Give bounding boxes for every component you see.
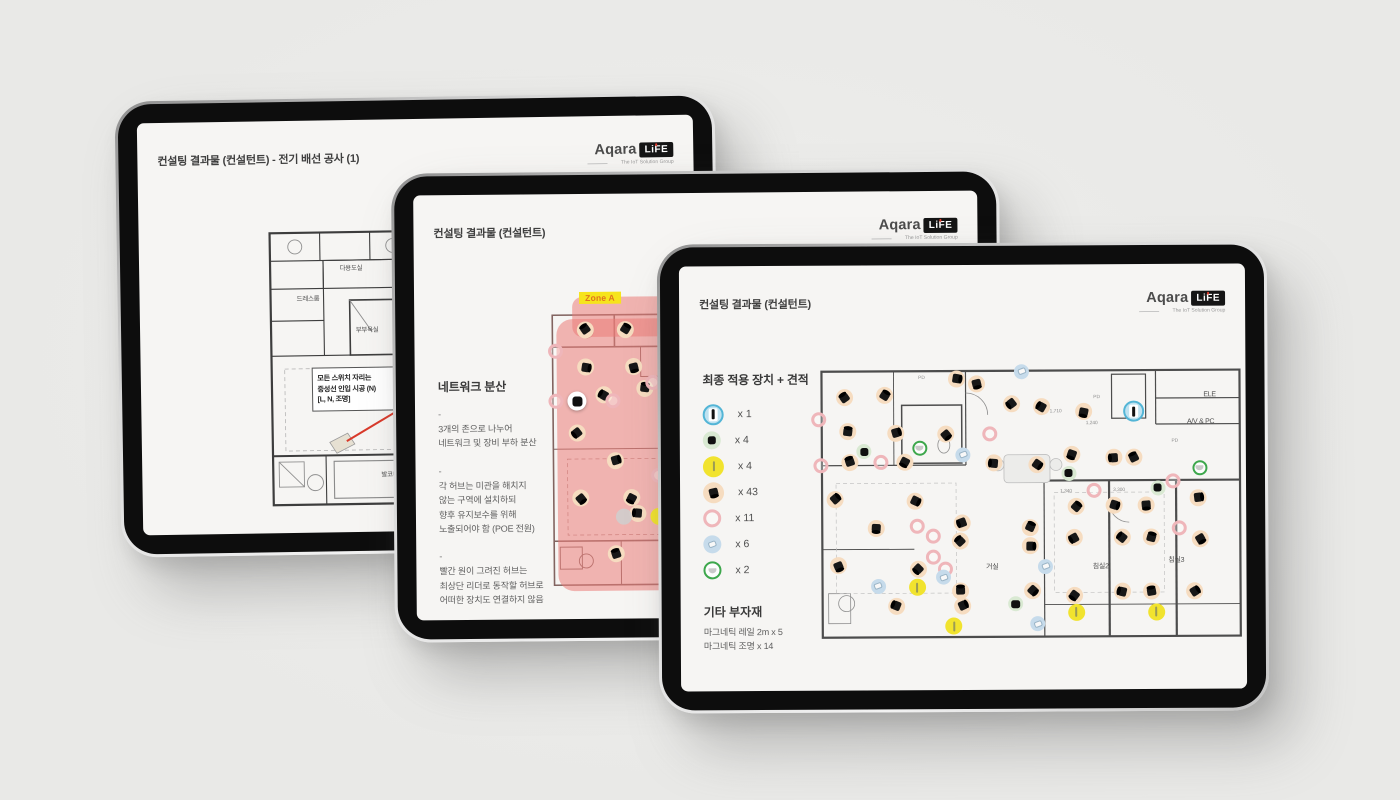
text-line: 어떠한 장치도 연결하지 않음 xyxy=(440,592,555,607)
spot-device-icon xyxy=(1143,583,1160,600)
bowl-device-icon xyxy=(703,561,721,579)
spot-device-icon xyxy=(1033,398,1050,415)
logo-brand: Aqara xyxy=(879,217,921,233)
ring-device-icon xyxy=(982,427,997,442)
hub-device-icon xyxy=(1061,465,1076,480)
aqara-logo: Aqara LiFE The IoT Solution Group xyxy=(587,141,673,166)
logo-tagline: The IoT Solution Group xyxy=(1172,308,1225,313)
bullet-group: -빨간 원이 그려진 허브는최상단 리더로 동작할 허브로어떠한 장치도 연결하… xyxy=(439,551,554,608)
legend-row: x 43 xyxy=(703,481,818,504)
legend-count: x 43 xyxy=(738,486,758,498)
legend-row: x 2 xyxy=(703,559,818,582)
ring-device-icon xyxy=(926,549,941,564)
gateway-device-icon xyxy=(1123,401,1144,422)
spot-device-icon xyxy=(1022,519,1039,536)
legend-row: x 4 xyxy=(703,455,818,478)
sensor-device-icon xyxy=(1014,364,1029,379)
slide-final-devices-quote: 컨설팅 결과물 (컨설턴트) Aqara LiFE The IoT Soluti… xyxy=(679,264,1247,692)
spot-device-icon xyxy=(888,425,905,442)
slide-header: 컨설팅 결과물 (컨설턴트) Aqara LiFE The IoT Soluti… xyxy=(679,264,1245,317)
tablet-front: 컨설팅 결과물 (컨설턴트) Aqara LiFE The IoT Soluti… xyxy=(657,241,1269,713)
room-label: ELE xyxy=(1203,392,1215,399)
ring-device-icon xyxy=(703,509,721,527)
spot-device-icon xyxy=(1143,528,1160,545)
spot-device-icon xyxy=(1189,489,1206,506)
plan-dimension-label: 1,710 xyxy=(1049,409,1061,414)
logo-tagline: The IoT Solution Group xyxy=(621,159,674,165)
legend-count: x 4 xyxy=(738,460,752,472)
spot-device-icon xyxy=(1186,583,1203,600)
logo-badge: LiFE xyxy=(924,217,958,232)
bullet-group: -3개의 존으로 나누어네트워크 및 장비 부하 분산 xyxy=(438,408,553,451)
ring-device-icon xyxy=(548,344,563,359)
spot-device-icon xyxy=(1114,529,1131,546)
spot-device-icon xyxy=(569,424,586,441)
light-device-icon xyxy=(909,579,926,596)
text-line: 최상단 리더로 동작할 허브로 xyxy=(440,578,555,593)
stage: 컨설팅 결과물 (컨설턴트) - 전기 배선 공사 (1) Aqara LiFE… xyxy=(0,0,1400,800)
ring-device-icon xyxy=(1165,473,1180,488)
text-line: 노출되어야 함 (POE 전원) xyxy=(439,521,554,536)
annotation-box: 모든 스위치 자리는중성선 인입 시공 (N)[L, N, 조명] xyxy=(312,367,397,412)
plan-dimension-label: PD xyxy=(918,376,925,381)
hub-device-icon xyxy=(703,431,721,449)
spot-device-icon xyxy=(1075,403,1092,420)
spot-device-icon xyxy=(1191,530,1208,547)
spot-device-icon xyxy=(1106,496,1123,513)
spot-device-icon xyxy=(1029,456,1046,473)
slide-title: 컨설팅 결과물 (컨설턴트) - 전기 배선 공사 (1) xyxy=(157,146,359,169)
ring-device-icon xyxy=(926,529,941,544)
room-label: 침실3 xyxy=(1168,555,1184,565)
light-device-icon xyxy=(703,456,724,477)
legend-count: x 4 xyxy=(735,434,749,446)
sensor-device-icon xyxy=(871,578,886,593)
text-line: 각 허브는 미관을 해치지 xyxy=(439,478,554,493)
text-line: 않는 구역에 설치하되 xyxy=(439,492,554,507)
slide-header: 컨설팅 결과물 (컨설턴트) Aqara LiFE The IoT Soluti… xyxy=(413,191,977,246)
bullet-dash: - xyxy=(438,408,553,419)
gateway-device-icon xyxy=(703,404,724,425)
spot-device-icon xyxy=(841,454,858,471)
plan-dimension-label: 1,340 xyxy=(1060,489,1072,494)
legend-count: x 1 xyxy=(738,408,752,420)
spot-device-icon xyxy=(868,520,885,537)
section-heading: 최종 적용 장치 + 견적 xyxy=(702,371,817,389)
bullet-dash: - xyxy=(439,551,554,562)
spot-device-icon xyxy=(1125,449,1142,466)
spot-device-icon xyxy=(1114,583,1131,600)
spot-device-icon xyxy=(1138,496,1155,513)
ring-device-icon xyxy=(548,394,563,409)
text-line: 빨간 원이 그려진 허브는 xyxy=(439,564,554,579)
ring-device-icon xyxy=(874,455,889,470)
spot-device-icon xyxy=(954,597,971,614)
legend-row: x 11 xyxy=(703,507,818,530)
bowl-device-icon xyxy=(912,441,927,456)
spot-device-icon xyxy=(572,489,589,506)
spot-device-icon xyxy=(1066,529,1083,546)
ring-device-icon xyxy=(1172,521,1187,536)
ring-device-icon xyxy=(1086,482,1101,497)
plan-dimension-label: 3,300 xyxy=(1113,488,1125,493)
logo-tagline: The IoT Solution Group xyxy=(905,235,958,241)
hub-device-icon xyxy=(1150,480,1165,495)
aqara-logo: Aqara LiFE The IoT Solution Group xyxy=(1139,290,1225,314)
text-line: [L, N, 조명] xyxy=(318,394,393,406)
bullet-list: -3개의 존으로 나누어네트워크 및 장비 부하 분산-각 허브는 미관을 해치… xyxy=(438,408,555,608)
spot-device-icon xyxy=(625,358,642,375)
spot-device-icon xyxy=(836,389,853,406)
section-heading: 네트워크 분산 xyxy=(438,377,553,395)
spot-device-icon xyxy=(948,370,965,387)
legend-count: x 6 xyxy=(735,538,749,550)
zone-a-tag: Zone A xyxy=(579,292,621,304)
legend-row: x 1 xyxy=(703,403,818,426)
spot-device-icon xyxy=(1024,582,1041,599)
room-label: A/V & PC xyxy=(1187,419,1214,426)
spot-device-icon xyxy=(1064,446,1081,463)
spot-device-icon xyxy=(826,491,843,508)
spot-device-icon xyxy=(617,321,634,338)
spot-device-icon xyxy=(968,375,985,392)
slide-title: 컨설팅 결과물 (컨설턴트) xyxy=(433,220,545,241)
ring-device-icon xyxy=(814,458,829,473)
hub-white-device-icon xyxy=(568,392,587,411)
spot-device-icon xyxy=(607,452,624,469)
spot-device-icon xyxy=(608,545,625,562)
legend-count: x 2 xyxy=(735,564,749,576)
spot-device-icon xyxy=(839,423,856,440)
spot-device-icon xyxy=(577,358,594,375)
extras-heading: 기타 부자재 xyxy=(704,603,819,621)
text-line: 마그네틱 레일 2m x 5 xyxy=(704,625,819,640)
spot-device-icon xyxy=(1022,537,1039,554)
logo-brand: Aqara xyxy=(594,142,636,159)
spot-device-icon xyxy=(876,387,893,404)
spot-device-icon xyxy=(938,426,955,443)
tablet-front-bezel: 컨설팅 결과물 (컨설턴트) Aqara LiFE The IoT Soluti… xyxy=(660,244,1266,710)
red-leader-line xyxy=(346,410,398,441)
slide-title: 컨설팅 결과물 (컨설턴트) xyxy=(699,292,811,313)
plan-dimension-label: 1,240 xyxy=(1086,421,1098,426)
spot-device-icon xyxy=(1105,449,1122,466)
text-line: 네트워크 및 장비 부하 분산 xyxy=(438,436,553,451)
plan-dimension-label: PD xyxy=(1171,439,1178,444)
spot-device-icon xyxy=(1066,587,1083,604)
room-label: 부부욕실 xyxy=(356,323,379,333)
ring-device-icon xyxy=(812,412,827,427)
device-legend: x 1x 4x 4x 43x 11x 6x 2 xyxy=(703,403,819,582)
bullet-dash: - xyxy=(439,465,554,476)
spot-device-icon xyxy=(1003,395,1020,412)
slide-header: 컨설팅 결과물 (컨설턴트) - 전기 배선 공사 (1) Aqara LiFE… xyxy=(137,115,694,174)
spot-device-icon xyxy=(906,492,923,509)
gray-device-icon xyxy=(616,508,632,524)
text-line: 마그네틱 조명 x 14 xyxy=(704,639,819,654)
spot-device-icon xyxy=(952,533,969,550)
spot-device-icon xyxy=(888,598,905,615)
sensor-device-icon xyxy=(703,535,721,553)
spot-device-icon xyxy=(910,560,927,577)
spot-device-icon xyxy=(830,557,847,574)
room-label: 침실2 xyxy=(1093,562,1109,572)
spot-device-icon xyxy=(703,482,724,503)
logo-badge: LiFE xyxy=(1191,290,1225,305)
extras-list: 마그네틱 레일 2m x 5마그네틱 조명 x 14 xyxy=(704,625,819,654)
sensor-device-icon xyxy=(1030,617,1045,632)
sensor-device-icon xyxy=(956,447,971,462)
plan-dimension-label: PD xyxy=(1093,394,1100,399)
spot-device-icon xyxy=(576,321,593,338)
logo-badge: LiFE xyxy=(639,141,673,157)
logo-brand: Aqara xyxy=(1146,290,1188,306)
spot-device-icon xyxy=(624,489,641,506)
sensor-device-icon xyxy=(1038,559,1053,574)
spot-device-icon xyxy=(896,453,913,470)
room-label: 다용도실 xyxy=(339,262,362,272)
spot-device-icon xyxy=(985,454,1002,471)
legend-count: x 11 xyxy=(735,512,754,524)
room-label: 드레스룸 xyxy=(297,293,320,303)
ring-device-icon xyxy=(605,393,620,408)
hub-device-icon xyxy=(1008,596,1023,611)
legend-row: x 6 xyxy=(703,533,818,556)
floor-plan-final-devices: 거실침실2침실3ELEA/V & PCPDPDPD1,7101,2401,340… xyxy=(815,352,1247,651)
light-device-icon xyxy=(946,618,963,635)
light-device-icon xyxy=(1148,603,1165,620)
text-line: 향후 유지보수를 위해 xyxy=(439,507,554,522)
aqara-logo: Aqara LiFE The IoT Solution Group xyxy=(871,217,957,242)
sensor-device-icon xyxy=(936,570,951,585)
legend-row: x 4 xyxy=(703,429,818,452)
ring-device-icon xyxy=(909,519,924,534)
text-line: 3개의 존으로 나누어 xyxy=(438,421,553,436)
light-device-icon xyxy=(1068,603,1085,620)
hub-device-icon xyxy=(857,444,872,459)
spot-device-icon xyxy=(1067,498,1084,515)
bullet-group: -각 허브는 미관을 해치지않는 구역에 설치하되향후 유지보수를 위해노출되어… xyxy=(439,465,555,537)
spot-device-icon xyxy=(953,514,970,531)
room-label: 거실 xyxy=(986,562,998,572)
bowl-device-icon xyxy=(1192,460,1207,475)
